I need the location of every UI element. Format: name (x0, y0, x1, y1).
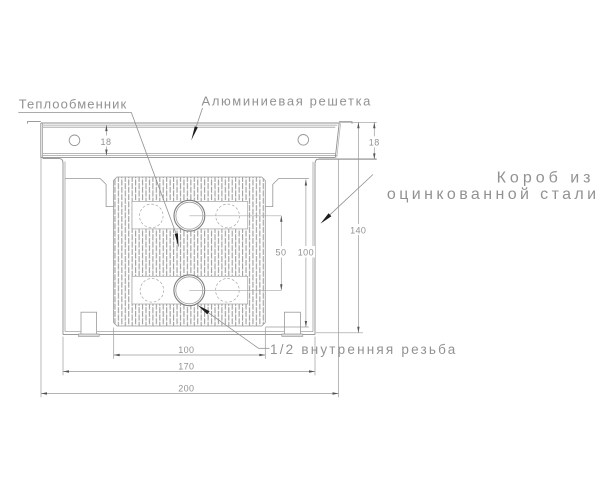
svg-text:18: 18 (369, 138, 380, 148)
svg-text:140: 140 (350, 225, 366, 235)
svg-text:100: 100 (298, 248, 314, 258)
svg-text:50: 50 (275, 248, 286, 258)
svg-text:Теплообменник: Теплообменник (19, 97, 128, 112)
svg-text:Алюминиевая решетка: Алюминиевая решетка (202, 94, 373, 109)
svg-text:200: 200 (178, 384, 194, 394)
svg-text:оцинкованной стали: оцинкованной стали (387, 186, 600, 203)
svg-text:100: 100 (178, 345, 194, 355)
svg-text:Короб из: Короб из (497, 170, 595, 187)
svg-text:1/2 внутренняя резьба: 1/2 внутренняя резьба (270, 342, 457, 357)
svg-text:18: 18 (100, 137, 111, 147)
svg-text:170: 170 (178, 362, 194, 372)
